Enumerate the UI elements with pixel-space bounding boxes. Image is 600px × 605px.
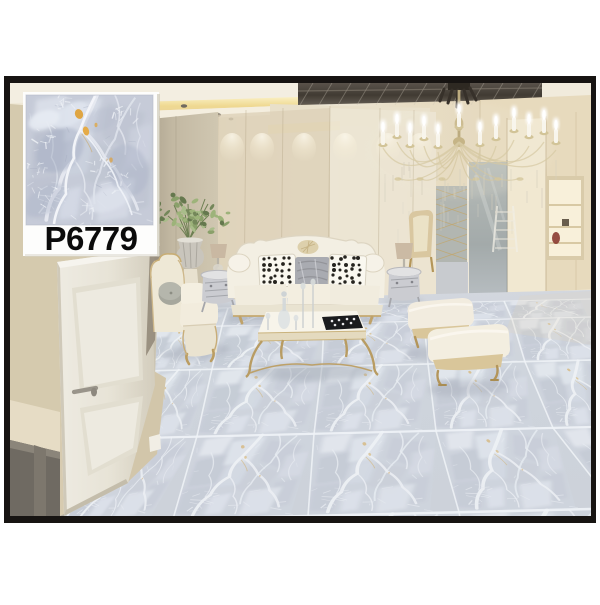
svg-text:P6779: P6779 xyxy=(45,220,138,257)
